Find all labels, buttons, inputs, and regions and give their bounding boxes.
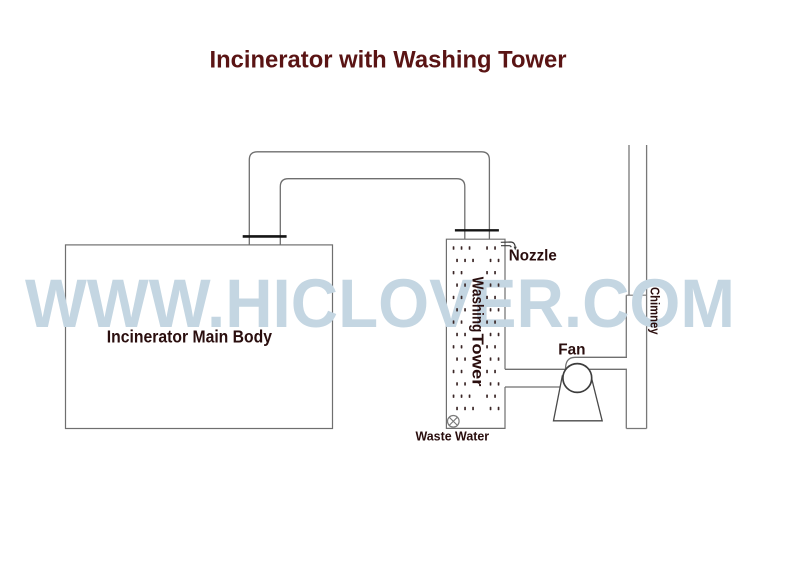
svg-text:Incinerator Main Body: Incinerator Main Body xyxy=(107,327,272,347)
svg-text:Waste Water: Waste Water xyxy=(416,429,490,444)
svg-text:Incinerator with Washing Tower: Incinerator with Washing Tower xyxy=(210,46,567,73)
svg-text:Chimney: Chimney xyxy=(648,287,662,335)
svg-text:Nozzle: Nozzle xyxy=(509,247,557,264)
svg-text:Tower: Tower xyxy=(468,334,485,387)
svg-text:Fan: Fan xyxy=(558,341,585,358)
svg-text:Washing: Washing xyxy=(468,277,485,333)
